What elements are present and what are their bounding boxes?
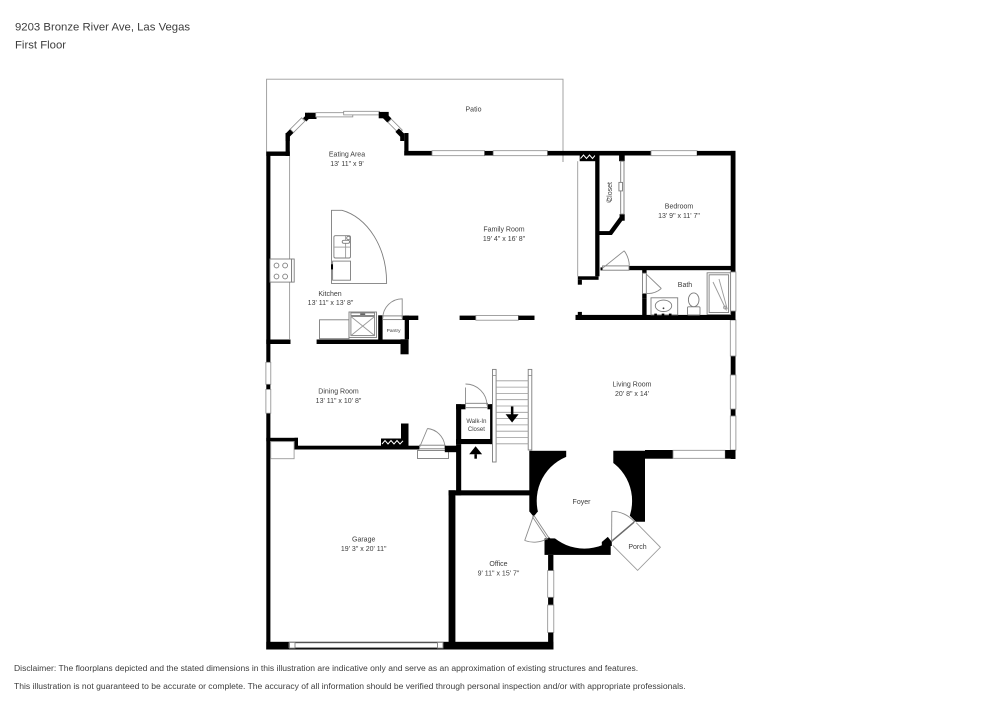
svg-text:Pantry: Pantry: [387, 328, 401, 334]
svg-text:19' 3" x 20' 11": 19' 3" x 20' 11": [341, 546, 387, 553]
svg-text:13' 11" x 10' 8": 13' 11" x 10' 8": [316, 398, 362, 405]
svg-text:Closet: Closet: [607, 182, 614, 202]
svg-text:20' 8" x 14': 20' 8" x 14': [615, 391, 649, 398]
svg-text:Porch: Porch: [628, 544, 646, 551]
svg-text:Living Room: Living Room: [613, 382, 652, 389]
svg-text:Bedroom: Bedroom: [665, 204, 694, 211]
svg-text:First Floor: First Floor: [15, 40, 66, 52]
svg-text:Disclaimer: The floorplans dep: Disclaimer: The floorplans depicted and …: [14, 663, 638, 673]
svg-text:9' 11" x 15' 7": 9' 11" x 15' 7": [478, 570, 520, 577]
svg-text:13' 11" x 9': 13' 11" x 9': [330, 161, 363, 168]
svg-text:This illustration is not guara: This illustration is not guaranteed to b…: [14, 681, 686, 691]
svg-text:Office: Office: [489, 561, 507, 568]
svg-text:13' 9" x 11' 7": 13' 9" x 11' 7": [658, 213, 700, 220]
svg-text:Patio: Patio: [466, 107, 482, 114]
svg-text:13' 11" x 13' 8": 13' 11" x 13' 8": [308, 300, 354, 307]
svg-text:Walk-In: Walk-In: [466, 419, 486, 425]
svg-text:Eating Area: Eating Area: [329, 152, 365, 159]
svg-text:19' 4" x 16' 8": 19' 4" x 16' 8": [483, 236, 526, 243]
svg-text:Garage: Garage: [352, 537, 375, 544]
svg-text:Closet: Closet: [468, 427, 485, 433]
svg-text:Dining Room: Dining Room: [318, 389, 359, 396]
svg-text:Bath: Bath: [678, 282, 693, 289]
svg-text:9203 Bronze River Ave, Las Veg: 9203 Bronze River Ave, Las Vegas: [15, 22, 190, 34]
svg-text:Family Room: Family Room: [483, 227, 524, 234]
svg-text:Kitchen: Kitchen: [318, 291, 341, 298]
svg-text:Foyer: Foyer: [573, 499, 592, 506]
